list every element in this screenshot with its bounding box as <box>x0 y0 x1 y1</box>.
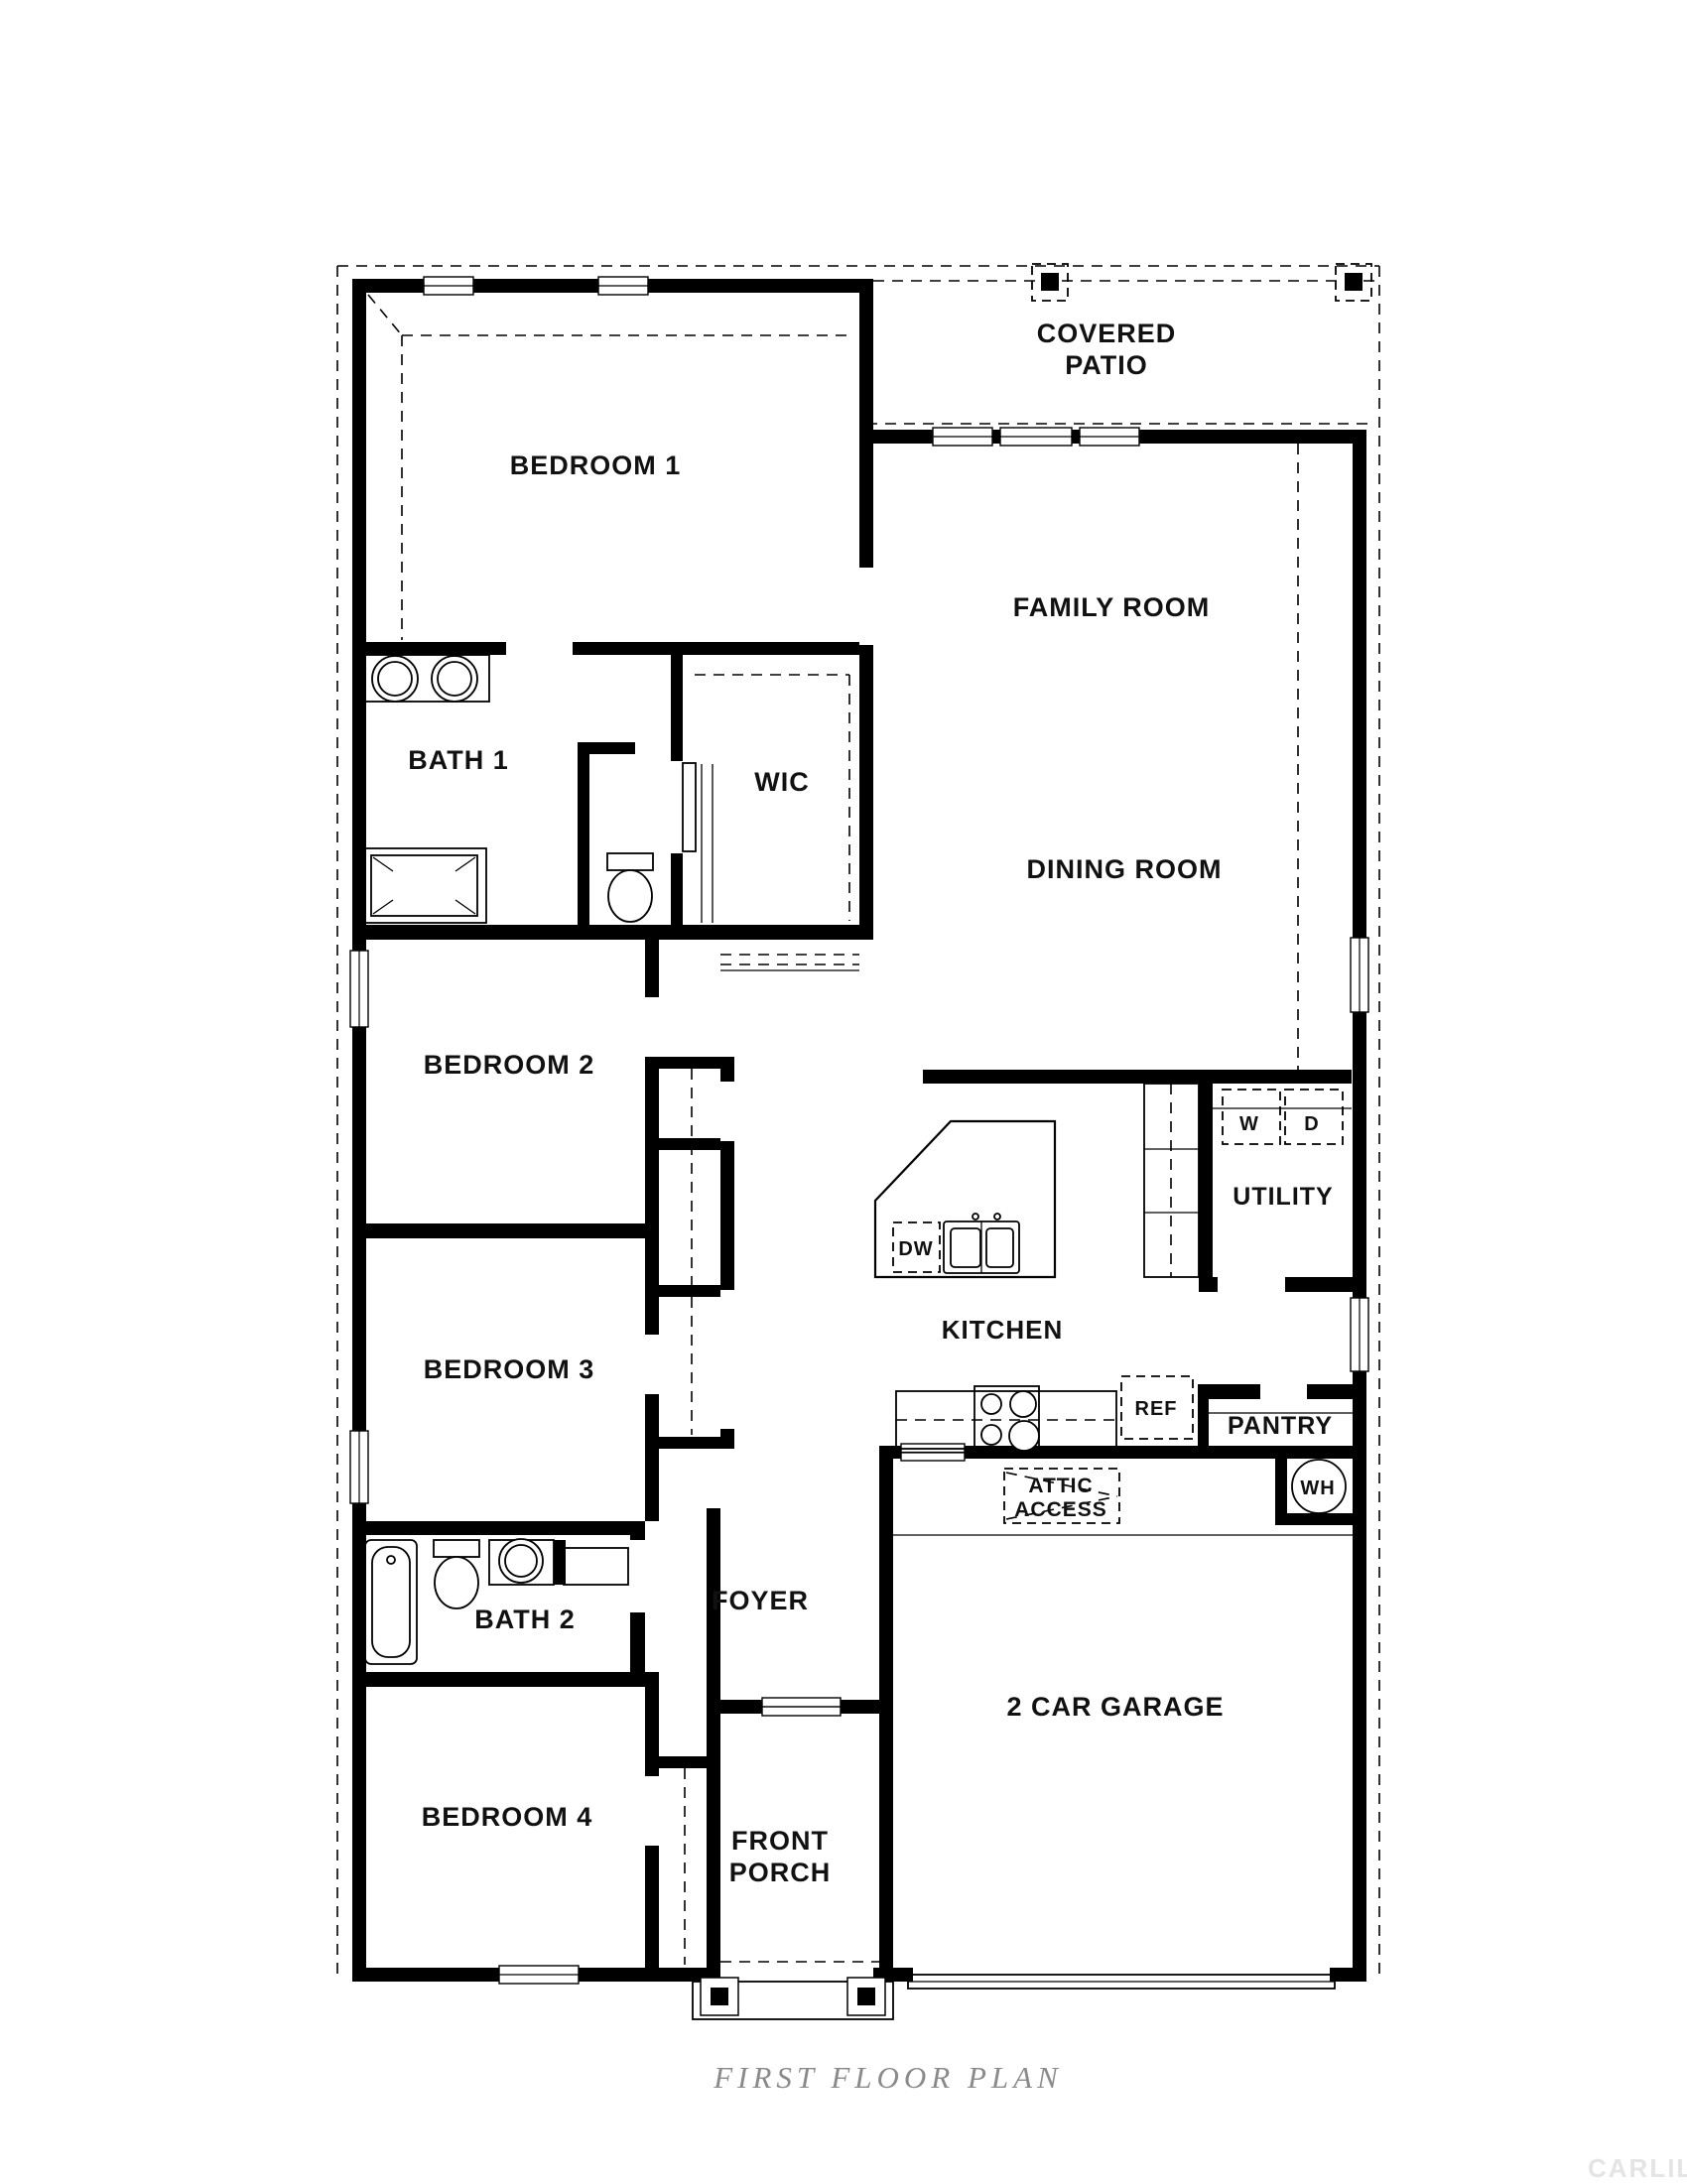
wall <box>879 1446 901 1459</box>
round-fixture <box>1009 1421 1039 1451</box>
walls-layer <box>352 279 1366 1982</box>
wall <box>645 940 659 997</box>
room-label: KITCHEN <box>942 1315 1064 1345</box>
detail-line <box>373 857 393 871</box>
window-symbol <box>1080 428 1139 446</box>
wall <box>1307 1384 1353 1399</box>
dashes-layer <box>337 266 1379 1982</box>
detail-line <box>373 900 393 914</box>
fixture <box>896 1391 1116 1449</box>
room-label: 2 CAR GARAGE <box>1006 1692 1224 1722</box>
wall <box>645 1846 659 1968</box>
room-label: COVERED <box>1037 319 1177 348</box>
wall <box>573 642 859 655</box>
wall <box>630 1521 645 1540</box>
wall <box>659 1437 720 1449</box>
room-label: D <box>1304 1113 1319 1135</box>
wall <box>352 925 859 940</box>
room-label: FRONT <box>731 1826 829 1856</box>
round-fixture <box>981 1425 1001 1445</box>
wall <box>648 279 859 293</box>
floor-plan-drawing: BEDROOM 1COVEREDPATIOFAMILY ROOMBATH 1WI… <box>0 0 1687 2183</box>
room-label: BEDROOM 1 <box>510 450 682 480</box>
wall <box>671 655 683 761</box>
detail-line <box>455 900 475 914</box>
wall <box>352 642 506 655</box>
fixture <box>607 853 653 870</box>
round-fixture <box>973 1214 978 1220</box>
wall <box>352 279 366 951</box>
drawing-title: FIRST FLOOR PLAN <box>714 2060 1063 2096</box>
wall <box>645 1057 659 1335</box>
window-symbol <box>350 1431 368 1503</box>
room-label: FAMILY ROOM <box>1013 592 1211 622</box>
room-label: BEDROOM 2 <box>424 1050 595 1080</box>
room-label: UTILITY <box>1233 1183 1333 1211</box>
window-symbol <box>1351 1298 1368 1371</box>
round-fixture <box>1010 1391 1036 1417</box>
room-label: DW <box>898 1238 933 1260</box>
wall <box>841 1700 879 1714</box>
wall <box>659 1756 707 1768</box>
room-label: PATIO <box>1065 350 1148 380</box>
wall <box>923 1070 1352 1084</box>
wall <box>645 1394 659 1521</box>
wall <box>352 1503 366 1982</box>
wall <box>1275 1513 1353 1525</box>
fixture <box>564 1548 628 1585</box>
fixture <box>434 1540 479 1557</box>
wall <box>707 1714 720 1968</box>
room-label: BEDROOM 4 <box>422 1802 593 1832</box>
room-label: REF <box>1135 1398 1178 1420</box>
round-fixture <box>505 1545 537 1577</box>
wall <box>1353 1012 1366 1298</box>
wall <box>1198 1384 1209 1457</box>
wall <box>671 853 683 925</box>
wall <box>473 279 598 293</box>
round-fixture <box>387 1556 395 1564</box>
room-label: W <box>1239 1113 1259 1135</box>
post <box>711 1988 728 2005</box>
wall <box>1199 1277 1218 1292</box>
round-fixture <box>438 662 471 696</box>
wall <box>659 1285 720 1297</box>
wall <box>352 1672 645 1687</box>
wall <box>720 1057 734 1082</box>
wall <box>1285 1277 1353 1292</box>
wall <box>352 1223 659 1238</box>
window-symbol <box>499 1966 579 1984</box>
wall <box>1199 1084 1213 1292</box>
wall <box>1353 1371 1366 1982</box>
room-label: DINING ROOM <box>1027 854 1223 884</box>
room-label: WH <box>1300 1477 1335 1499</box>
wall <box>707 1700 762 1714</box>
round-fixture <box>378 662 412 696</box>
wall <box>1275 1459 1287 1513</box>
wall <box>992 430 1000 444</box>
wall <box>579 1968 720 1982</box>
window-symbol <box>350 951 368 1027</box>
wall <box>352 1968 499 1982</box>
room-label: ACCESS <box>1014 1498 1107 1521</box>
room-label: PANTRY <box>1228 1412 1333 1440</box>
dashed-line <box>368 295 402 335</box>
fixture <box>371 855 477 916</box>
room-label: BATH 1 <box>408 745 509 775</box>
toilet-bowl <box>435 1557 478 1608</box>
wall <box>859 279 873 568</box>
fixture <box>362 848 486 923</box>
window-symbol <box>598 277 648 295</box>
wall <box>1209 1384 1260 1399</box>
window-symbol <box>424 277 473 295</box>
room-label: ATTIC <box>1028 1475 1093 1497</box>
wall <box>578 754 589 925</box>
wall <box>630 1612 645 1672</box>
wall <box>859 645 873 940</box>
post <box>1041 273 1059 291</box>
post <box>1345 273 1363 291</box>
room-label: WIC <box>754 767 809 797</box>
wall <box>859 430 933 444</box>
wall <box>659 1138 720 1150</box>
room-label: FOYER <box>712 1586 809 1615</box>
detail-line <box>455 857 475 871</box>
wall <box>659 1057 720 1069</box>
window-symbol <box>933 428 992 446</box>
wall <box>352 279 424 293</box>
wall <box>720 1141 734 1290</box>
wall <box>578 742 635 754</box>
post <box>857 1988 875 2005</box>
room-label: BATH 2 <box>474 1605 576 1634</box>
round-fixture <box>981 1394 1001 1414</box>
round-fixture <box>994 1214 1000 1220</box>
toilet-bowl <box>608 870 652 922</box>
wall <box>879 1459 893 1968</box>
fixture <box>683 763 696 851</box>
wall <box>720 1429 734 1449</box>
wall <box>1072 430 1080 444</box>
wall <box>1139 430 1353 444</box>
wall <box>352 1521 630 1535</box>
wall <box>645 1672 659 1776</box>
room-label: PORCH <box>729 1858 832 1887</box>
wall <box>1353 430 1366 938</box>
window-symbol <box>1351 938 1368 1012</box>
window-symbol <box>1000 428 1072 446</box>
builder-watermark: CARLILE, INC <box>1588 2153 1687 2184</box>
room-label: BEDROOM 3 <box>424 1354 595 1384</box>
